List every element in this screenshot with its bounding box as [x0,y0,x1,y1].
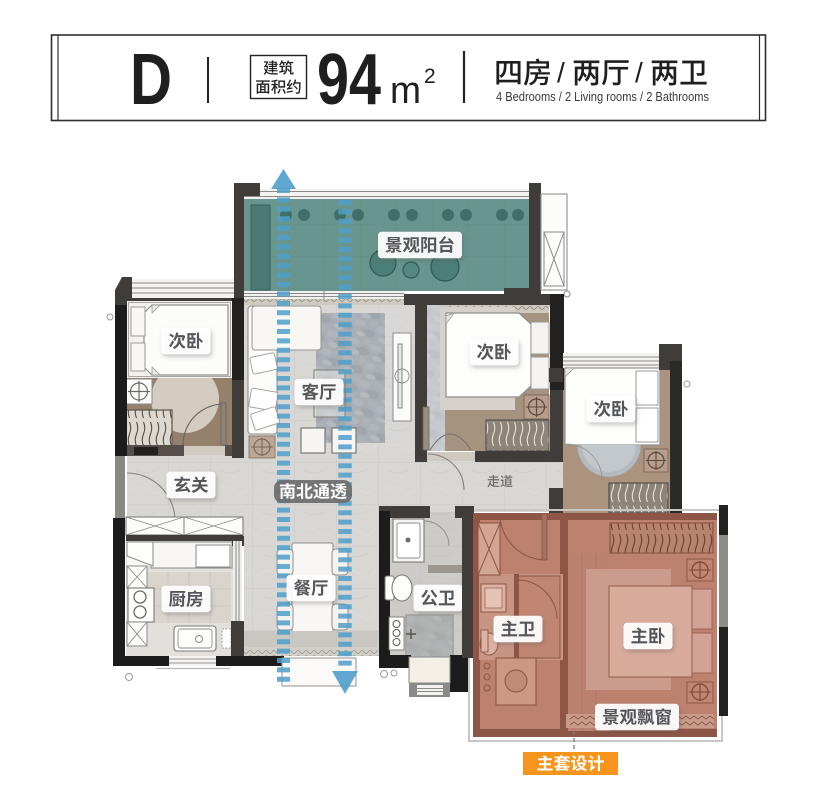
svg-text:2: 2 [424,65,436,88]
svg-text:/: / [557,57,565,88]
svg-text:94: 94 [317,40,381,120]
svg-text:m: m [390,70,421,112]
svg-text:D: D [130,40,172,120]
svg-text:/: / [635,57,643,88]
svg-text:4 Bedrooms / 2 Living rooms /: 4 Bedrooms / 2 Living rooms / 2 Bathroom… [496,89,709,104]
